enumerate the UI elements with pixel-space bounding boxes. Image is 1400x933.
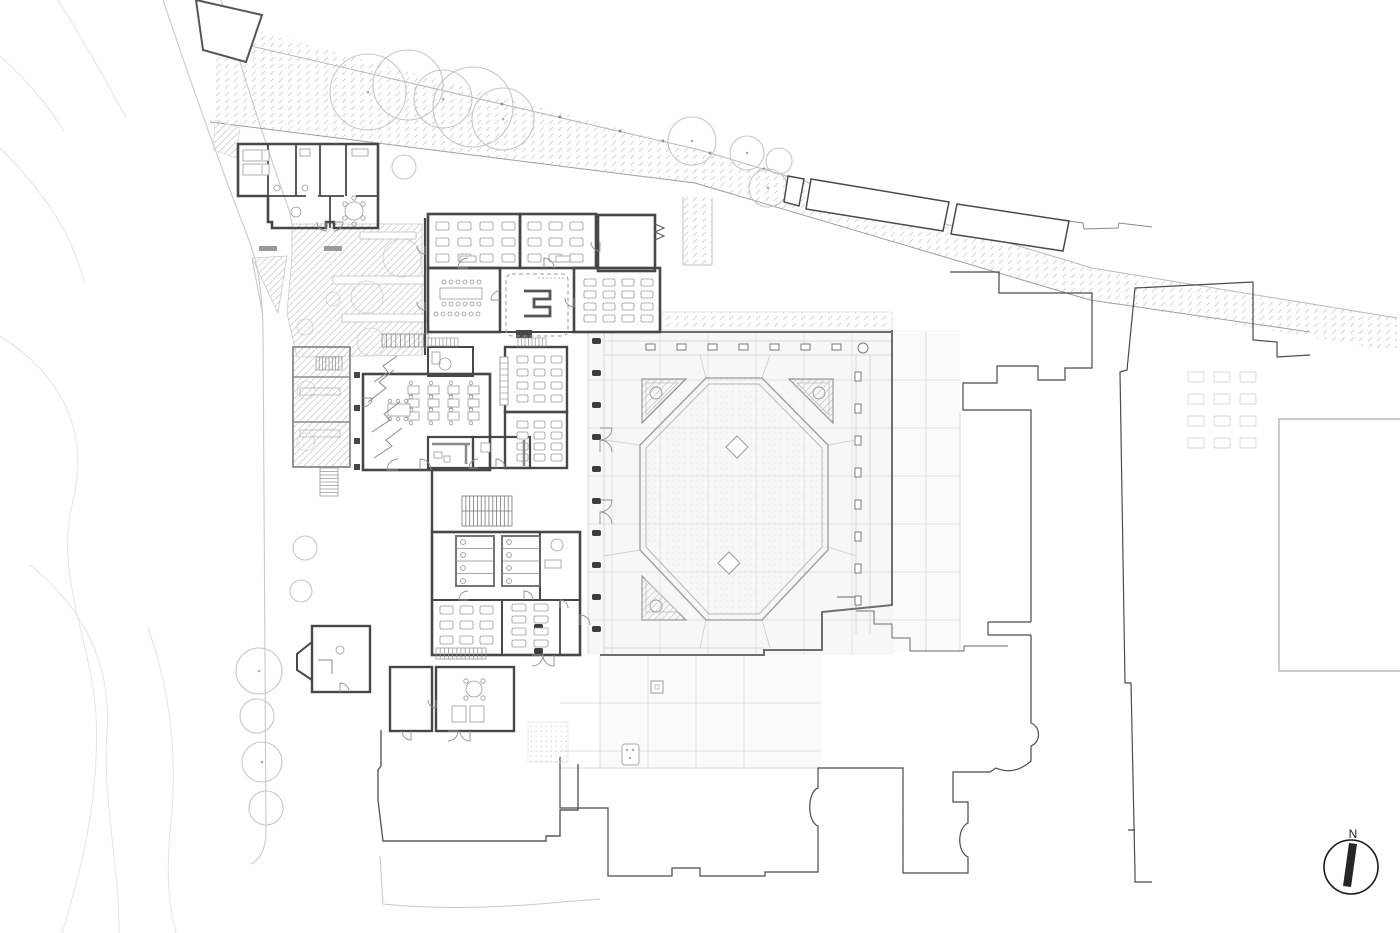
furniture-item: [243, 150, 269, 161]
street-verge-item: [619, 130, 622, 133]
forecourt-slabs-item: [259, 246, 277, 251]
furniture-item: [440, 288, 482, 299]
school-walls-item: [354, 405, 360, 411]
furniture-item: [556, 256, 570, 262]
furniture-item: [352, 149, 368, 156]
forecourt-slabs-item: [333, 276, 425, 284]
furniture-item: [300, 149, 310, 156]
furniture-item: [440, 606, 493, 644]
forecourt-slabs-item: [360, 232, 416, 239]
site-plan-page: N: [0, 0, 1400, 933]
furniture-item: [243, 164, 269, 175]
furniture-item: [388, 399, 408, 403]
trees-item: [261, 761, 264, 764]
courtyard-item: [534, 648, 543, 654]
courtyard-item: [629, 757, 631, 759]
site-plan-drawing: N: [0, 0, 1400, 933]
trees-item: [502, 118, 505, 121]
courtyard-item: [626, 749, 628, 751]
trees-item: [258, 670, 261, 673]
hatched-grounds-item: [293, 347, 350, 467]
street-verge-item: [662, 140, 665, 143]
hatched-grounds-item: [287, 224, 422, 357]
forecourt-slabs-item: [324, 246, 342, 251]
trees-item: [367, 91, 370, 94]
street-verge-item: [501, 103, 504, 106]
school-walls-item: [516, 330, 532, 338]
furniture-item: [452, 706, 466, 722]
furniture-item: [528, 222, 583, 262]
area-fills-item: [893, 330, 960, 652]
courtyard-item: [632, 749, 634, 751]
furniture-item: [388, 417, 408, 421]
courtyard-item: [622, 744, 639, 765]
street-verge-item: [559, 116, 562, 119]
furniture-item: [432, 352, 440, 364]
street-verge-item: [709, 152, 712, 155]
trees-item: [746, 152, 749, 155]
trees-item: [691, 140, 694, 143]
school-walls-item: [354, 438, 360, 444]
furniture-item: [388, 404, 410, 416]
forecourt-slabs-item: [342, 314, 426, 322]
furniture-item: [460, 256, 476, 262]
furniture-item: [470, 706, 484, 722]
courtyard-item: [651, 681, 663, 693]
north-label: N: [1349, 827, 1358, 841]
furniture-item: [481, 443, 490, 452]
trees-item: [767, 187, 770, 190]
school-walls-item: [354, 372, 360, 378]
furniture-item: [444, 456, 450, 462]
trees-item: [442, 98, 445, 101]
street-verge-item: [662, 312, 892, 330]
school-walls-item: [354, 464, 360, 470]
furniture-item: [545, 560, 561, 568]
furniture-item: [434, 452, 442, 458]
courtyard-item: [528, 722, 568, 762]
